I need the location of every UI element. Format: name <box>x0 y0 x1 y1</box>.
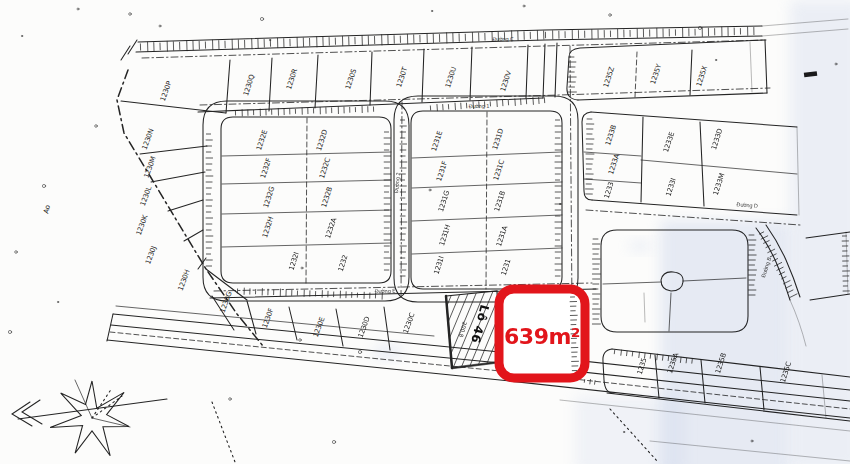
scanned-cadastral-map: 1230P1230Q1230R1230S1230T1230U1230V1230N… <box>0 0 850 464</box>
map-canvas: 1230P1230Q1230R1230S1230T1230U1230V1230N… <box>0 0 850 464</box>
area-callout-label: 639m² <box>504 324 580 349</box>
